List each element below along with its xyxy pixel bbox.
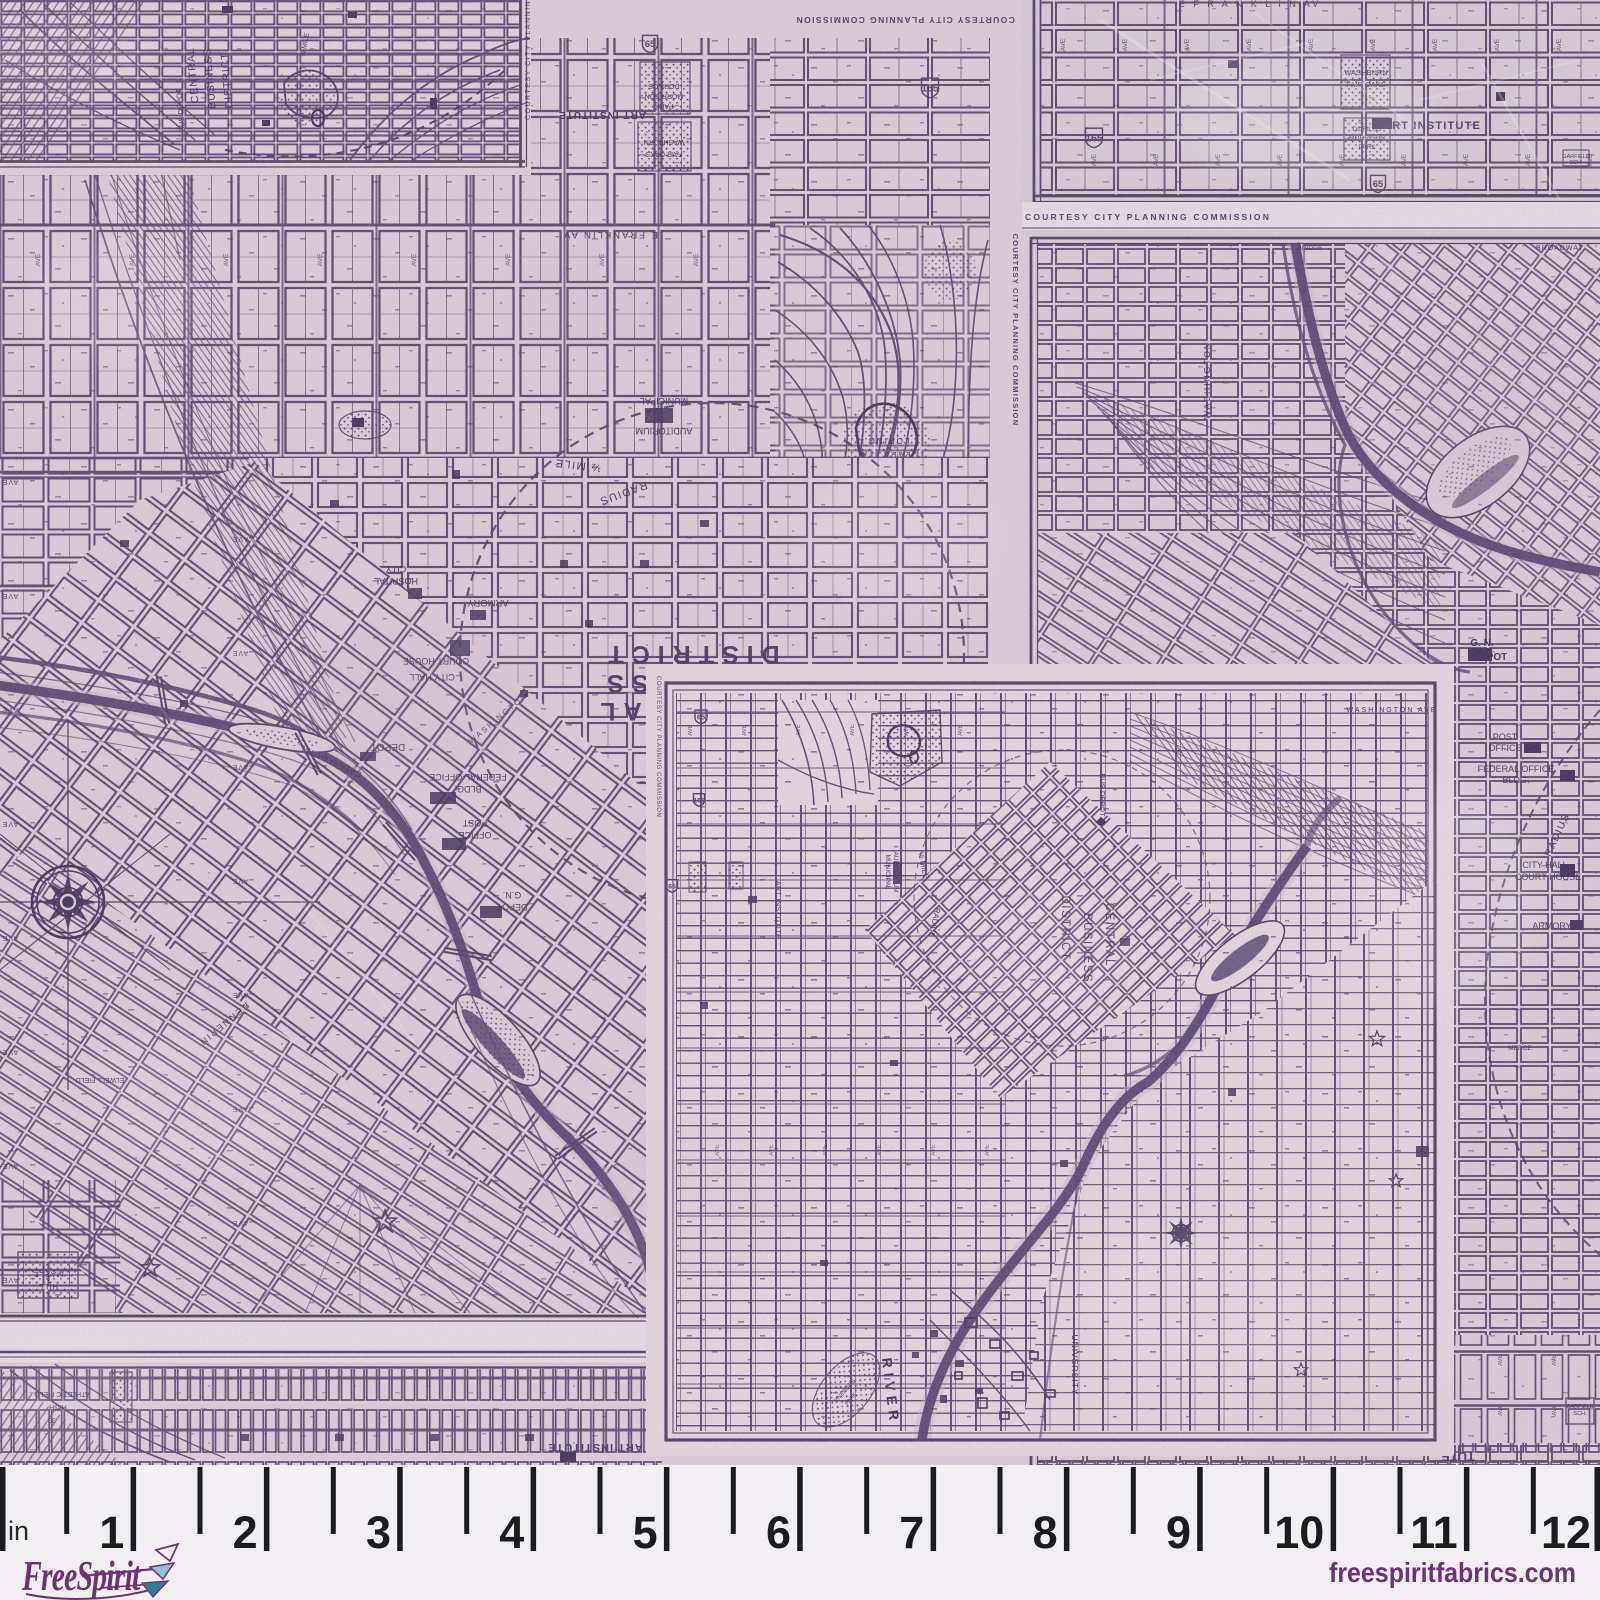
svg-text:8: 8 — [1033, 1507, 1058, 1558]
svg-text:12: 12 — [1541, 1507, 1591, 1558]
svg-text:10: 10 — [1274, 1507, 1324, 1558]
svg-text:2: 2 — [233, 1507, 258, 1558]
svg-text:freespiritfabrics.com: freespiritfabrics.com — [1329, 1557, 1576, 1588]
svg-text:6: 6 — [766, 1507, 791, 1558]
svg-text:FreeSpirit: FreeSpirit — [21, 1552, 142, 1600]
svg-text:in: in — [8, 1516, 29, 1546]
svg-text:9: 9 — [1166, 1507, 1191, 1558]
svg-text:4: 4 — [499, 1507, 524, 1558]
svg-text:1: 1 — [99, 1507, 124, 1558]
svg-text:5: 5 — [633, 1507, 658, 1558]
svg-text:7: 7 — [899, 1507, 924, 1558]
svg-text:11: 11 — [1410, 1507, 1458, 1558]
svg-text:3: 3 — [366, 1507, 391, 1558]
